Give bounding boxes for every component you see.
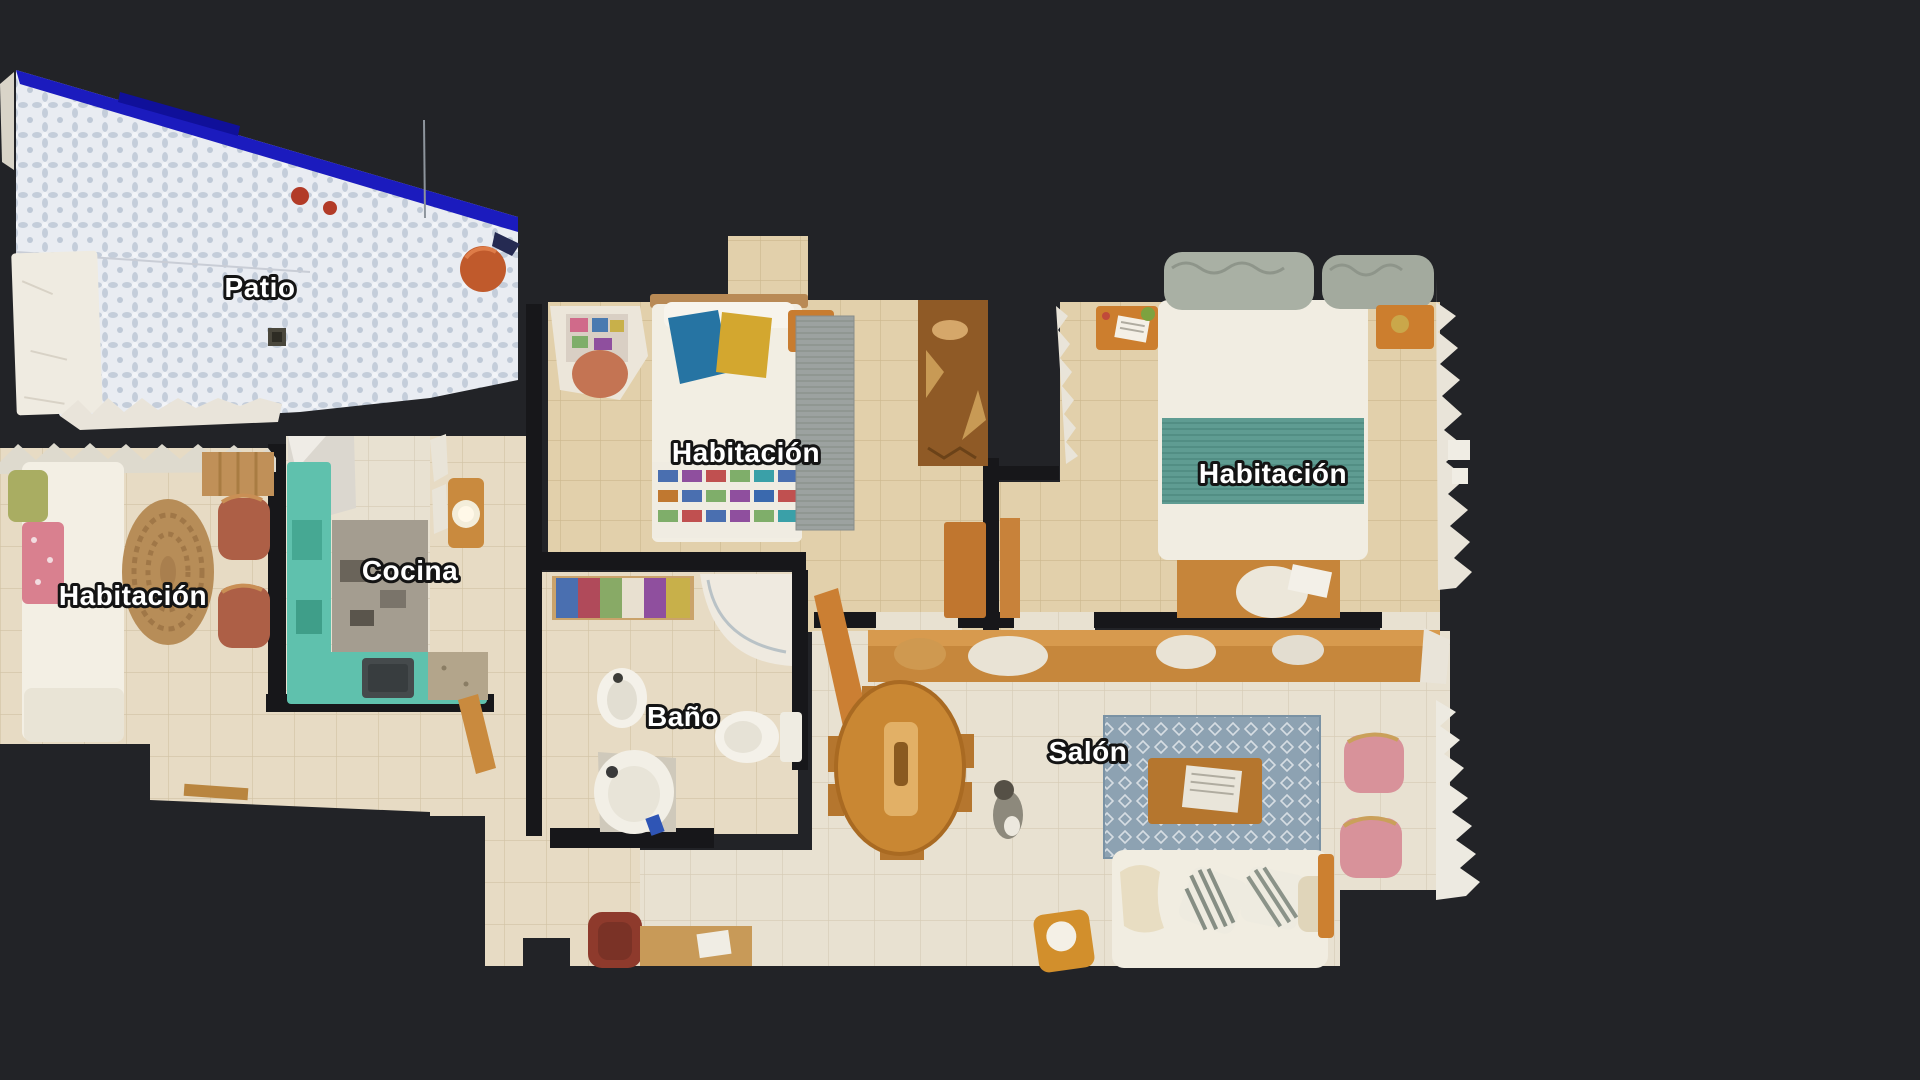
patio-red-item-1 — [291, 187, 309, 205]
sofa-pillow-striped-2 — [1239, 865, 1307, 932]
crib-patch — [570, 318, 588, 332]
counter-shade-2 — [296, 600, 322, 634]
patio-white-slab — [11, 251, 103, 416]
wardrobe-gloss — [932, 320, 968, 340]
towels — [556, 578, 690, 618]
sofa-orange-arm — [1318, 854, 1334, 938]
counter-shade-1 — [292, 520, 322, 560]
blanket-dot — [35, 579, 41, 585]
bed-fold — [24, 688, 124, 742]
pink-chair-1 — [1344, 735, 1404, 793]
label-kitchen: Cocina — [362, 555, 458, 586]
wall-bedroomright-stub — [983, 466, 1059, 480]
pink-blanket — [22, 522, 64, 604]
stone-speck — [442, 666, 447, 671]
counter-stone-section — [428, 652, 488, 700]
torn-white-bit-2 — [1452, 468, 1468, 484]
desk-south — [640, 926, 752, 966]
pouf-orange — [1032, 908, 1096, 973]
pink-chair-2 — [1340, 818, 1402, 878]
open-door-panel-1 — [944, 522, 986, 618]
door-gap-floor-3 — [1380, 612, 1440, 632]
sideboard-cushion-2 — [1156, 635, 1216, 669]
terracotta-chair-2 — [218, 586, 270, 648]
patio-torn-left-edge — [0, 72, 14, 170]
wall-bedroommiddle-south — [534, 552, 806, 570]
label-bedroom-middle: Habitación — [672, 437, 820, 468]
basin-drain — [606, 766, 618, 778]
label-bedroom-left: Habitación — [59, 580, 207, 611]
sideboard-top-edge — [868, 630, 1440, 646]
floorplan-viewport: Patio Habitación Cocina Habitación Baño … — [0, 0, 1920, 1080]
toilet-seat — [724, 721, 762, 753]
kitchen-clutter-2 — [380, 590, 406, 608]
bidet-bowl — [607, 680, 637, 720]
table-centerpiece — [894, 742, 908, 786]
toilet-tank — [780, 712, 802, 762]
sideboard-cushion-1 — [968, 636, 1048, 676]
terracotta-seat — [572, 350, 628, 398]
plant — [1141, 307, 1155, 321]
floor-notch — [523, 938, 570, 968]
patio-red-item-2 — [323, 201, 337, 215]
patio-drain-grate — [272, 332, 282, 342]
green-pillow — [8, 470, 48, 522]
grey-pillow-2 — [1322, 255, 1434, 309]
gold-item — [1391, 315, 1409, 333]
kitchen-inner-floor — [332, 520, 428, 652]
sideboard-cushion-3 — [1272, 635, 1324, 665]
terracotta-chair-1 — [218, 498, 270, 560]
stone-speck — [464, 682, 469, 687]
crib-patch — [610, 320, 624, 332]
crib-patch — [572, 336, 588, 348]
lamp-glow — [458, 506, 474, 522]
sideboard-wood-patch — [894, 638, 946, 670]
grey-runner-rug — [796, 316, 854, 530]
crib-patch — [594, 338, 612, 350]
sofa-pillow-beige — [1120, 865, 1164, 933]
crib-patch — [592, 318, 608, 332]
blanket-dot — [31, 537, 37, 543]
pole-line — [424, 120, 425, 218]
red-chair-seat — [598, 922, 632, 960]
label-living-room: Salón — [1049, 736, 1128, 767]
bidet-tap — [613, 673, 623, 683]
terracotta-pot — [460, 246, 506, 292]
door-gap-floor-2 — [1013, 612, 1095, 632]
desk-south-paper — [696, 930, 731, 958]
grey-pillow-1 — [1164, 252, 1314, 310]
kitchen-clutter-3 — [350, 610, 374, 626]
floorplan-canvas: Patio Habitación Cocina Habitación Baño … — [0, 0, 1920, 1080]
hall-floor[interactable] — [150, 712, 430, 812]
open-door-panel-2 — [1000, 518, 1020, 618]
label-bathroom: Baño — [647, 701, 719, 732]
torn-white-bit-1 — [1448, 440, 1470, 460]
sink-basin — [368, 664, 408, 692]
label-bedroom-right: Habitación — [1199, 458, 1347, 489]
blanket-dot — [47, 557, 53, 563]
yellow-pillow — [716, 312, 772, 378]
label-patio: Patio — [225, 272, 296, 303]
red-item — [1102, 312, 1110, 320]
